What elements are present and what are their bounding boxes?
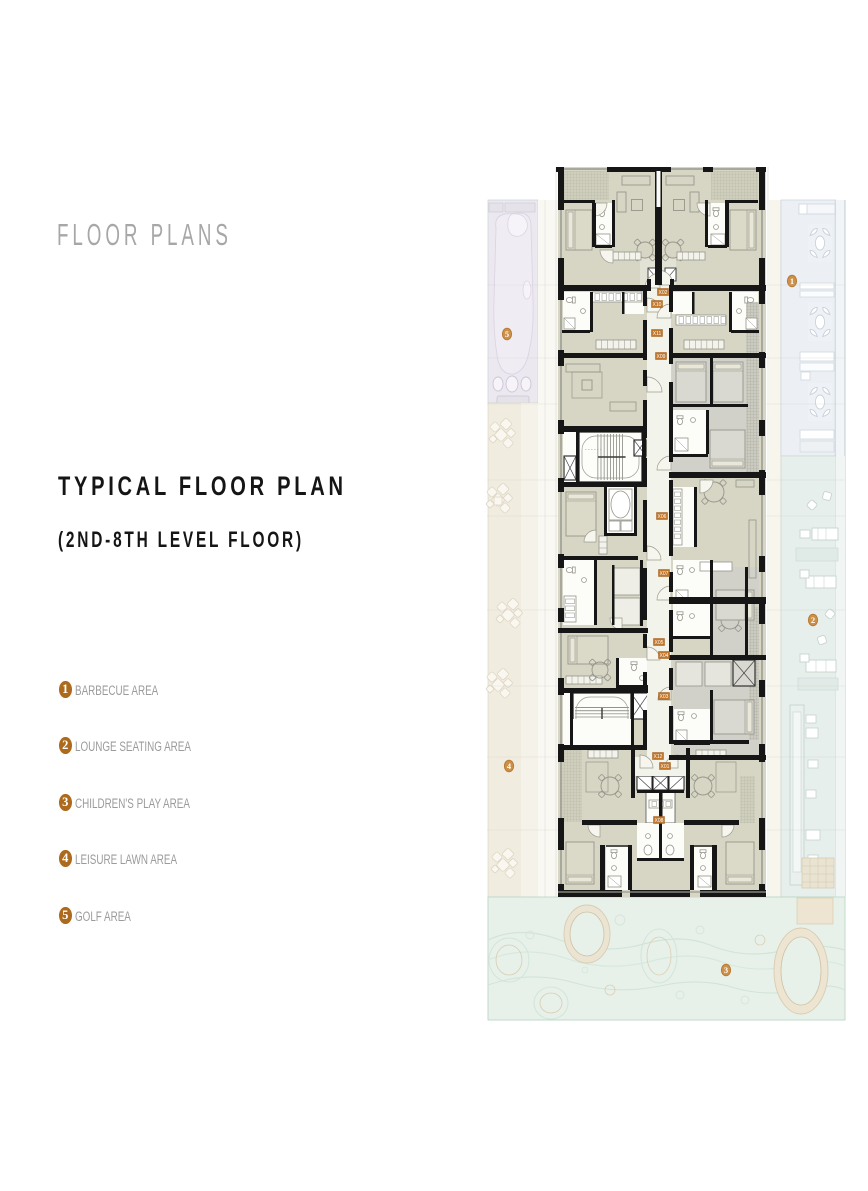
svg-text:X10: X10 — [653, 302, 662, 308]
svg-text:X04: X04 — [660, 653, 669, 659]
svg-text:X05: X05 — [655, 640, 664, 646]
svg-text:X11: X11 — [653, 331, 662, 337]
svg-text:X02: X02 — [659, 290, 668, 296]
svg-text:X12: X12 — [654, 754, 663, 760]
svg-text:X09: X09 — [657, 354, 666, 360]
svg-text:X08: X08 — [655, 818, 664, 824]
svg-text:X01: X01 — [661, 764, 670, 770]
svg-text:X06: X06 — [658, 514, 667, 520]
svg-text:X03: X03 — [660, 694, 669, 700]
svg-text:X07: X07 — [660, 571, 669, 577]
svg-text:3: 3 — [724, 965, 728, 975]
svg-text:2: 2 — [811, 615, 815, 625]
svg-text:5: 5 — [505, 329, 509, 339]
svg-text:1: 1 — [790, 276, 794, 286]
